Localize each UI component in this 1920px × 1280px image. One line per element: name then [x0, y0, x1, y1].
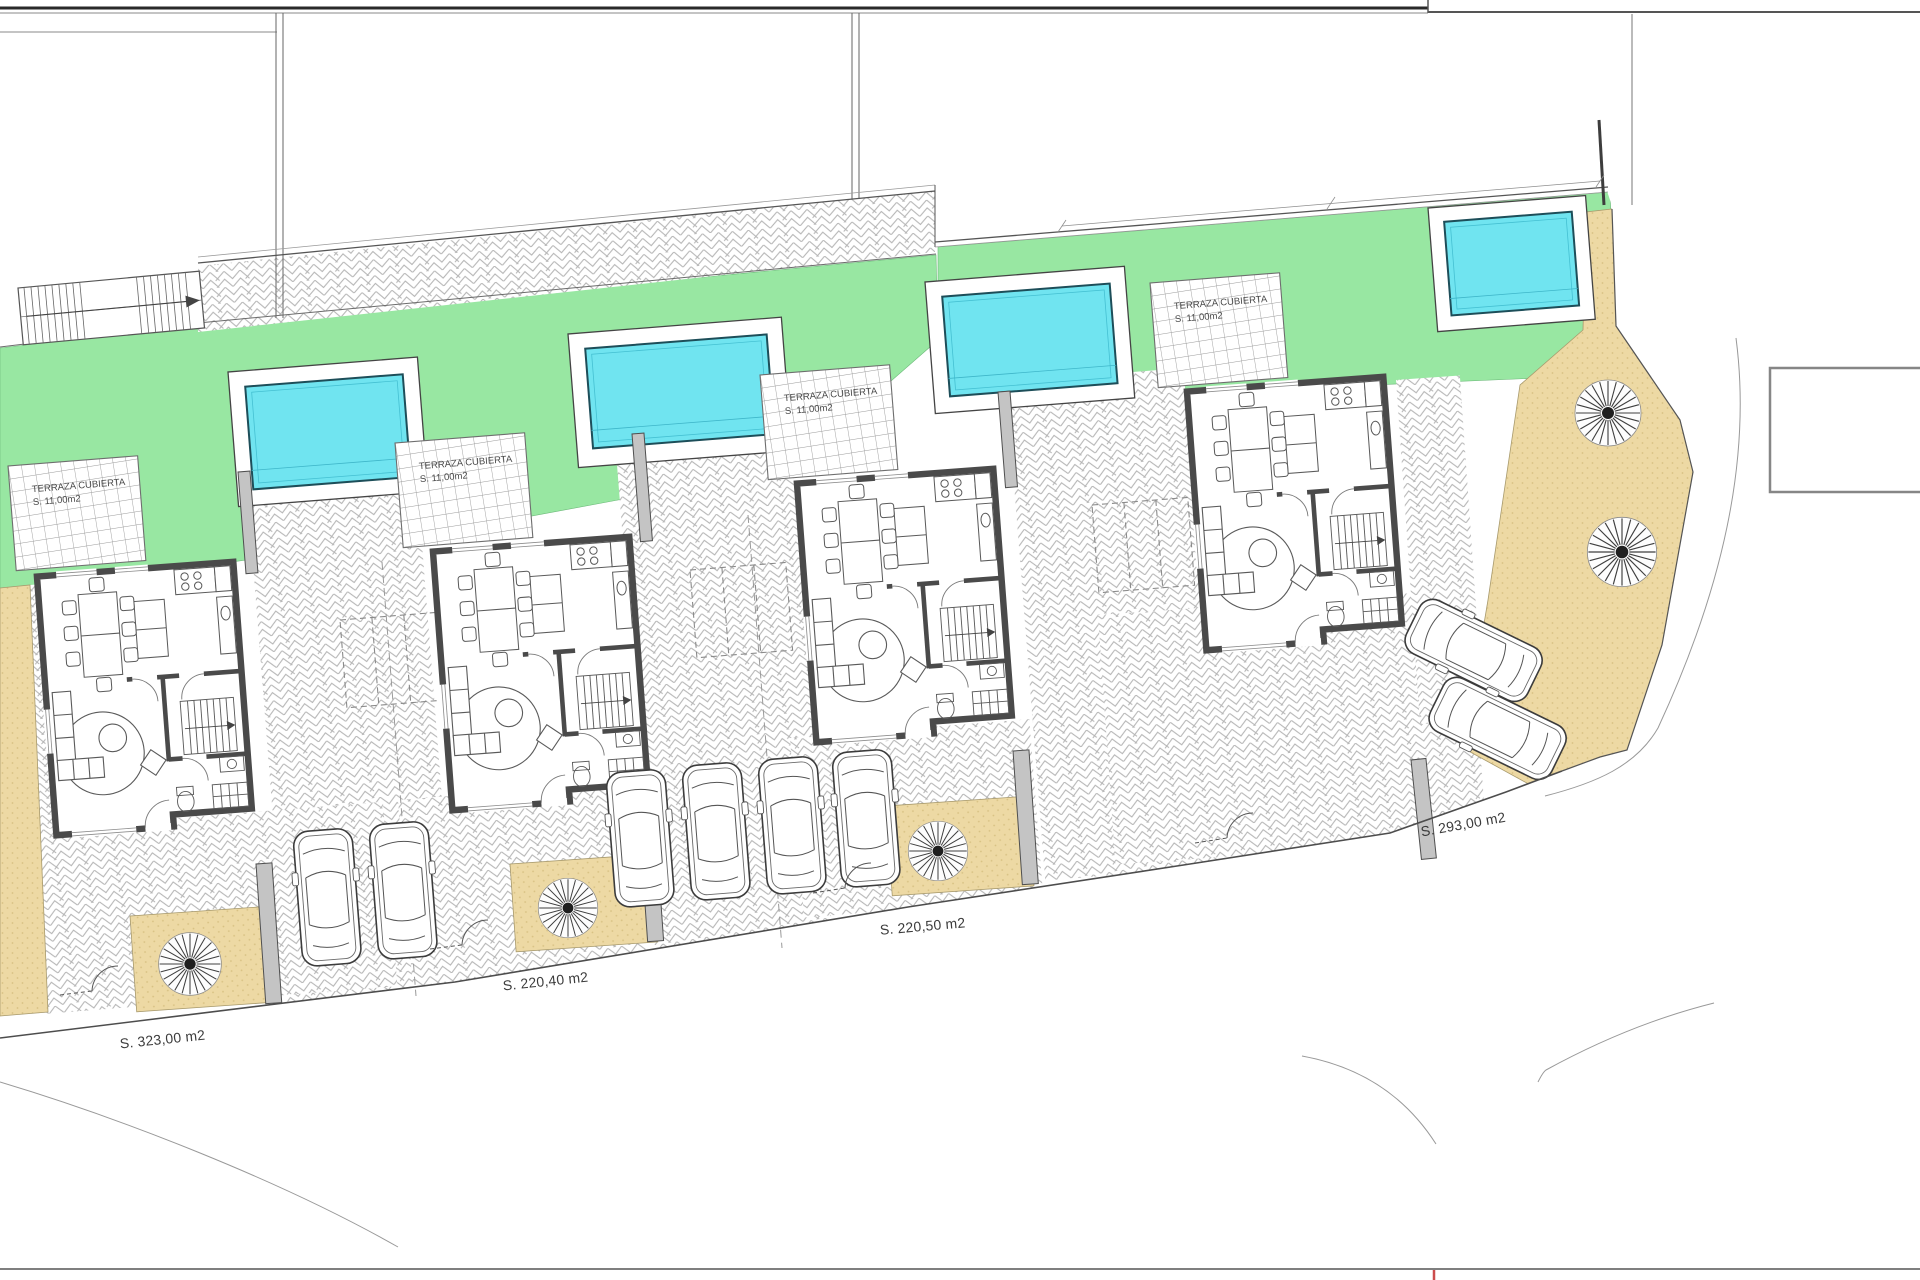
site-plan-canvas: TERRAZA CUBIERTA S. 11,00m2 TERRAZA CUBI…	[0, 0, 1920, 1280]
tree-plot-1	[159, 933, 222, 996]
site-plan-drawing: TERRAZA CUBIERTA S. 11,00m2 TERRAZA CUBI…	[0, 0, 1920, 1280]
terrace-plot-1: TERRAZA CUBIERTA S. 11,00m2	[8, 456, 146, 571]
tree-plot-3	[908, 821, 967, 880]
house-plot-4	[1183, 373, 1403, 654]
tree-plot-4-a	[1575, 380, 1641, 446]
pool-plot-3	[925, 266, 1135, 413]
terrace-plot-2: TERRAZA CUBIERTA S. 11,00m2	[395, 433, 533, 548]
house-plot-2	[429, 533, 649, 814]
tree-plot-4-b	[1587, 517, 1656, 586]
tree-plot-2	[538, 878, 597, 937]
terrace-plot-4: TERRAZA CUBIERTA S. 11,00m2	[1150, 273, 1288, 388]
house-plot-3	[793, 465, 1013, 746]
terrace-plot-3: TERRAZA CUBIERTA S. 11,00m2	[760, 365, 898, 480]
house-plot-1	[33, 558, 253, 839]
pool-plot-4	[1428, 196, 1595, 332]
pool-plot-2	[568, 317, 792, 467]
neighbour-building	[1770, 368, 1920, 492]
